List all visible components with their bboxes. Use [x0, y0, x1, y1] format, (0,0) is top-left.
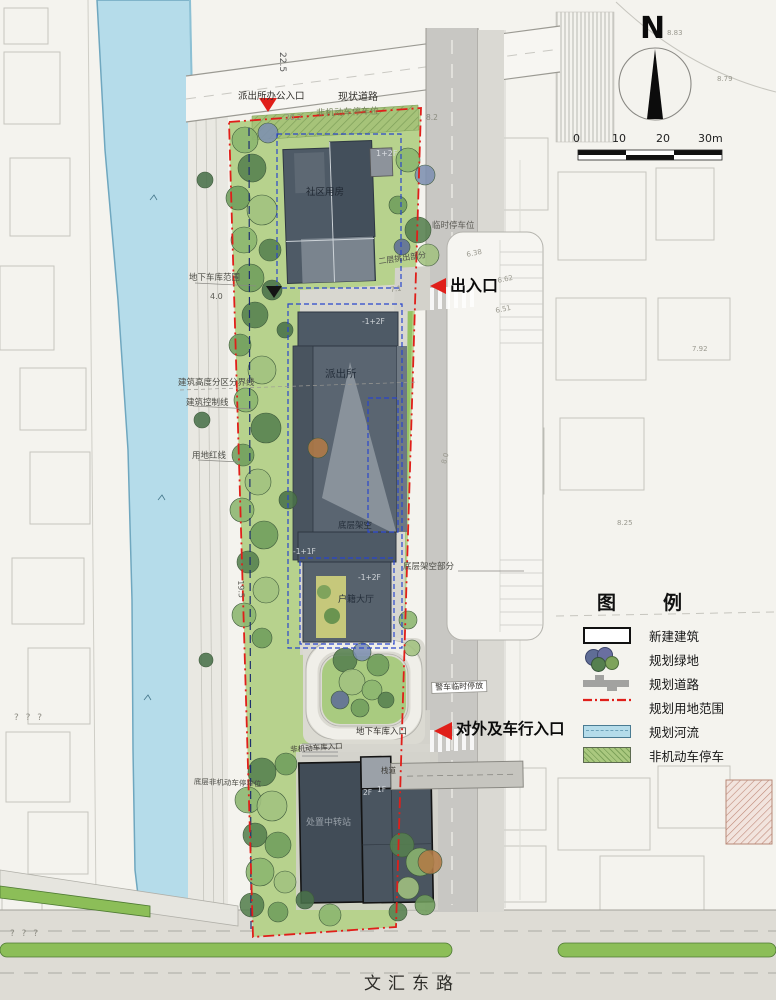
scale-tick-30: 30m	[698, 133, 723, 144]
legend-item-planned-road: 规划道路	[583, 671, 776, 695]
label-community-room: 社区用房	[306, 188, 344, 198]
spot-elevation: 8.83	[667, 30, 683, 37]
label-office-entrance: 派出所办公入口	[238, 92, 305, 102]
label-temp-parking: 临时停车位	[432, 222, 475, 231]
legend-label: 规划绿地	[649, 650, 699, 669]
label-entrance-exit: 出入口	[450, 278, 498, 294]
legend-label: 规划河流	[649, 722, 699, 741]
planned-road-swatch-icon	[583, 673, 639, 693]
legend-label: 规划道路	[649, 674, 699, 693]
legend: 图 例 新建建筑 规划绿地 规划道路 规划用地范围 规划河流 非机动车停车	[583, 588, 776, 767]
label-police-car-parking: 警车临时停放	[431, 680, 487, 694]
label-ground-nonmotor: 底层非机动车停车位	[194, 778, 262, 788]
new-building-swatch-icon	[583, 625, 639, 645]
planned-river-swatch-icon	[583, 721, 639, 741]
label-household-hall: 户籍大厅	[338, 596, 374, 605]
legend-item-nonmotor-parking: 非机动车停车	[583, 743, 776, 767]
label-transfer-station: 处置中转站	[306, 819, 351, 828]
legend-item-planned-river: 规划河流	[583, 719, 776, 743]
label-dim-20-2: 20.2	[285, 114, 302, 122]
site-plan-canvas: 22.5 派出所办公入口 现状道路 20.2 非机动车停车位 8.2 社区用房 …	[0, 0, 776, 1000]
label-main-entrance: 对外及车行入口	[456, 722, 565, 738]
spot-elevation: 8.25	[617, 520, 633, 527]
label-open-part: 底层架空部分	[403, 563, 454, 572]
planned-green-swatch-icon	[583, 649, 639, 669]
scale-tick-20: 20	[656, 133, 670, 144]
spot-elevation: 7.92	[692, 346, 708, 353]
label-building-control-line: 建筑控制线	[186, 399, 229, 408]
north-label: N	[640, 14, 665, 44]
label-floors-2f: 2F	[363, 789, 372, 797]
label-land-red-line: 用地红线	[192, 452, 226, 461]
label-ground-floor-open: 底层架空	[338, 522, 372, 531]
scale-tick-0: 0	[573, 133, 580, 144]
label-height-zone-line: 建筑高度分区分界线	[178, 379, 255, 388]
label-dim-8-2: 8.2	[426, 114, 438, 122]
legend-label: 规划用地范围	[649, 698, 724, 717]
label-dim-22-5: 22.5	[277, 52, 286, 72]
scale-tick-10: 10	[612, 133, 626, 144]
label-garage-entrance: 地下车库入口	[356, 728, 407, 737]
label-floors-1f: 1F	[377, 786, 386, 794]
label-floors-m1-2f: -1+2F	[358, 574, 381, 582]
label-dim-4-0: 4.0	[210, 293, 223, 301]
label-dim-19-5: 19.5	[236, 580, 245, 598]
legend-item-new-building: 新建建筑	[583, 623, 776, 647]
legend-label: 新建建筑	[649, 626, 699, 645]
spot-elevation: 8.79	[717, 76, 733, 83]
label-floors-m1-1f: -1+1F	[293, 548, 316, 556]
label-road-name: 文汇东路	[364, 976, 460, 993]
legend-title: 图 例	[597, 588, 776, 615]
legend-label: 非机动车停车	[649, 746, 724, 765]
site-boundary-swatch-icon	[583, 697, 639, 717]
north-arrow-icon	[619, 48, 691, 120]
label-walkway: 栈道	[381, 767, 396, 775]
label-garage-extent: 地下车库范围	[189, 274, 240, 283]
label-floors-m1-2f-top: -1+2F	[362, 318, 385, 326]
legend-item-planned-green: 规划绿地	[583, 647, 776, 671]
scale-bar	[578, 150, 722, 160]
label-qmarks-2: ? ? ?	[10, 930, 40, 939]
label-existing-road: 现状道路	[338, 93, 378, 103]
label-police-station: 派出所	[325, 369, 357, 380]
nonmotor-parking-swatch-icon	[583, 745, 639, 765]
label-floors-1-2f: 1+2F	[376, 150, 397, 158]
building-police-station	[293, 312, 407, 642]
riverside-walk	[188, 112, 228, 937]
legend-item-site-boundary: 规划用地范围	[583, 695, 776, 719]
label-qmarks-1: ? ? ?	[14, 714, 44, 723]
